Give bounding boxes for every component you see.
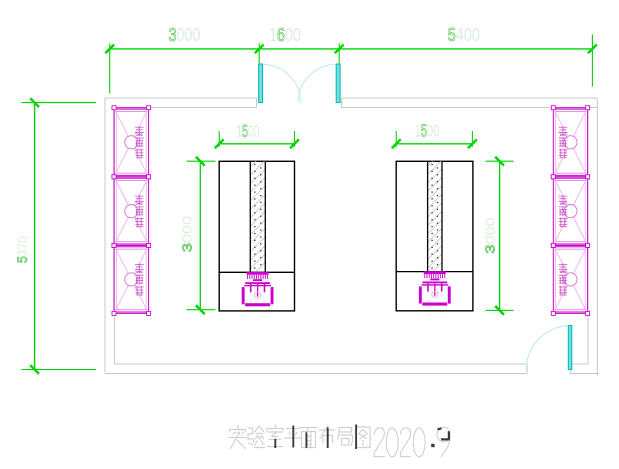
svg-text:3: 3: [169, 26, 177, 46]
svg-text:5: 5: [421, 122, 427, 141]
svg-text:5: 5: [242, 122, 248, 142]
svg-text:3: 3: [484, 245, 498, 254]
svg-text:3: 3: [181, 243, 195, 252]
svg-text:5: 5: [448, 26, 456, 46]
svg-text:5: 5: [14, 256, 30, 263]
svg-text:6: 6: [277, 26, 285, 46]
